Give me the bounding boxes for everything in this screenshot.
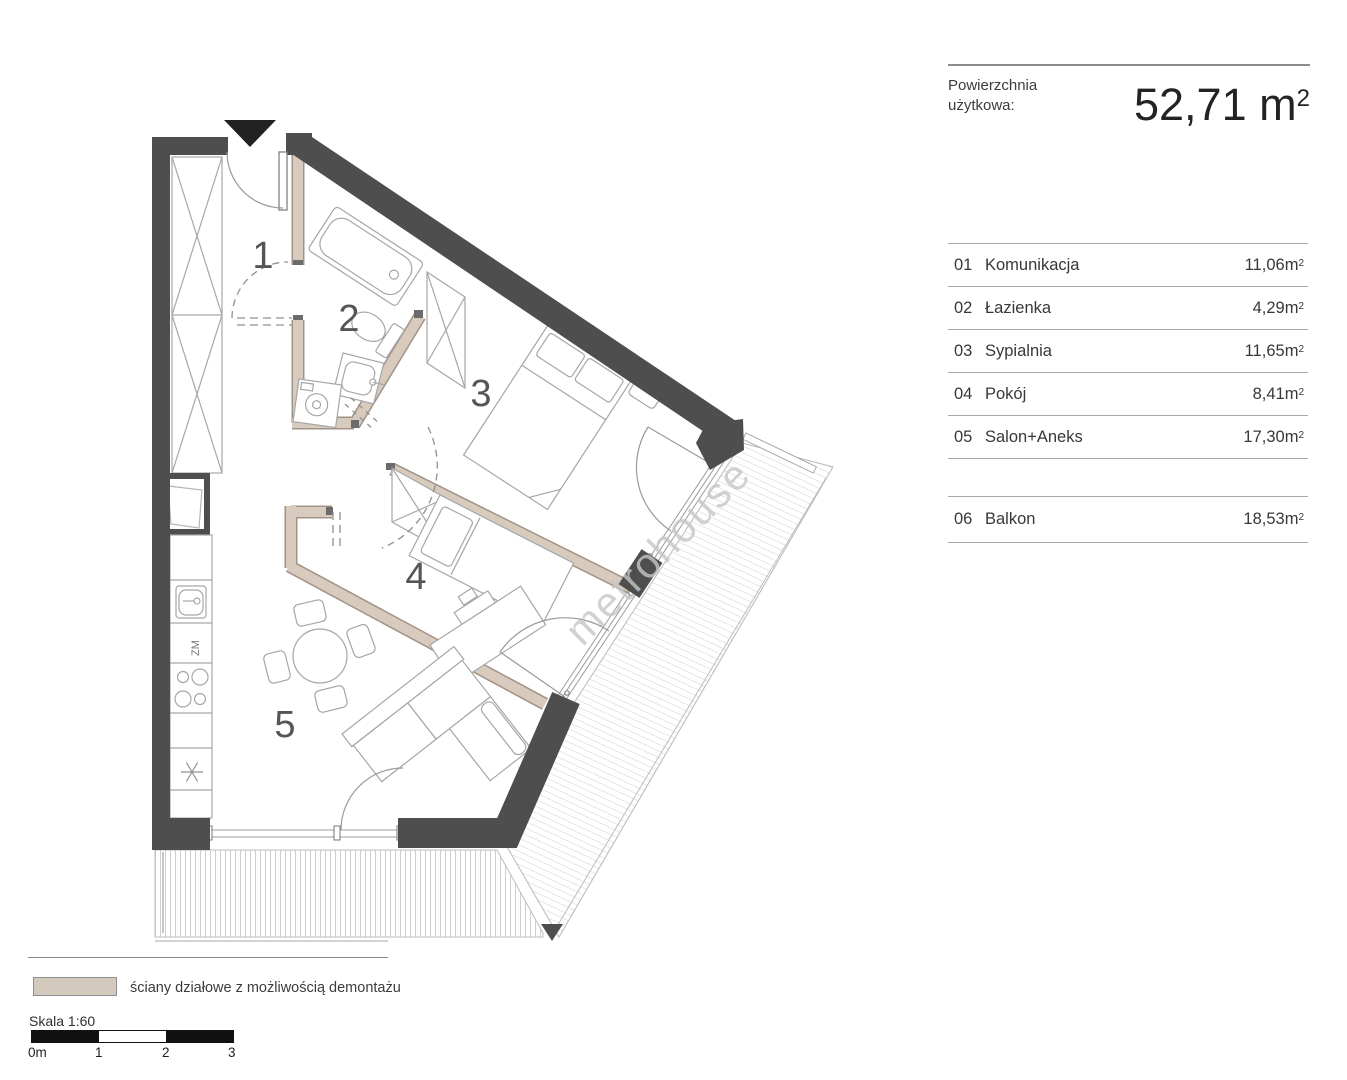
scale-tick-1: 1 — [95, 1045, 103, 1060]
room-area: 4,29m2 — [1253, 299, 1308, 318]
double-bed — [464, 312, 670, 528]
kitchen-counter: ZM — [170, 535, 212, 818]
balcony-door-salon — [341, 768, 403, 830]
wardrobe-hall — [172, 157, 222, 473]
scale-segment — [32, 1031, 99, 1042]
room-area: 17,30m2 — [1243, 428, 1308, 447]
kitchen-sink — [176, 586, 206, 618]
room-name: Łazienka — [985, 299, 1253, 318]
room-row: 03Sypialnia11,65m2 — [948, 329, 1308, 372]
wardrobe-bedroom — [427, 272, 465, 388]
room-area: 18,53m2 — [1243, 510, 1308, 529]
scale-bar — [31, 1030, 234, 1043]
room-row: 01Komunikacja11,06m2 — [948, 243, 1308, 286]
room-label-3: 3 — [470, 373, 491, 415]
room-name: Sypialnia — [985, 342, 1245, 361]
room-row: 02Łazienka4,29m2 — [948, 286, 1308, 329]
room-number: 06 — [948, 510, 985, 529]
scale-tick-2: 2 — [162, 1045, 170, 1060]
room-area-table: 01Komunikacja11,06m202Łazienka4,29m203Sy… — [948, 243, 1308, 459]
room-label-2: 2 — [338, 298, 359, 340]
room-name: Komunikacja — [985, 256, 1245, 275]
room-row: 05Salon+Aneks17,30m2 — [948, 415, 1308, 459]
room-number: 01 — [948, 256, 985, 275]
scale-label: Skala 1:60 — [29, 1013, 95, 1029]
room-row: 04Pokój8,41m2 — [948, 372, 1308, 415]
dishwasher-label: ZM — [190, 640, 202, 656]
entrance — [224, 120, 287, 210]
room-label-4: 4 — [405, 556, 426, 598]
room-number: 04 — [948, 385, 985, 404]
room-label-1: 1 — [252, 235, 273, 277]
entrance-door-leaf — [279, 152, 287, 210]
room-area: 11,06m2 — [1245, 256, 1308, 275]
room-number: 03 — [948, 342, 985, 361]
dining-table — [263, 599, 377, 713]
legend-separator — [28, 957, 388, 958]
room-area: 8,41m2 — [1253, 385, 1308, 404]
room-number: 05 — [948, 428, 985, 447]
usable-area-label: Powierzchnia użytkowa: — [948, 76, 1037, 117]
scale-tick-3: 3 — [228, 1045, 236, 1060]
room-number: 02 — [948, 299, 985, 318]
balcony-area-table: 06Balkon18,53m2 — [948, 496, 1308, 543]
partition-wall-swatch — [33, 977, 117, 996]
room-label-5: 5 — [274, 704, 295, 746]
scale-segment — [166, 1031, 233, 1042]
usable-area-value: 52,71 m2 — [1134, 82, 1310, 127]
washing-machine — [293, 379, 342, 428]
area-summary-panel: Powierzchnia użytkowa: 52,71 m2 — [948, 64, 1310, 127]
washbasin — [333, 353, 389, 405]
legend-label: ściany działowe z możliwością demontażu — [130, 980, 401, 996]
room-name: Pokój — [985, 385, 1253, 404]
floor-plan: ZM — [0, 0, 940, 1080]
room-row: 06Balkon18,53m2 — [948, 496, 1308, 543]
scale-segment — [99, 1031, 166, 1042]
room-name: Salon+Aneks — [985, 428, 1243, 447]
room-area: 11,65m2 — [1245, 342, 1308, 361]
page: ZM — [0, 0, 1347, 1080]
room-name: Balkon — [985, 510, 1243, 529]
scale-tick-0: 0m — [28, 1045, 47, 1060]
entrance-arrow-icon — [224, 120, 276, 147]
